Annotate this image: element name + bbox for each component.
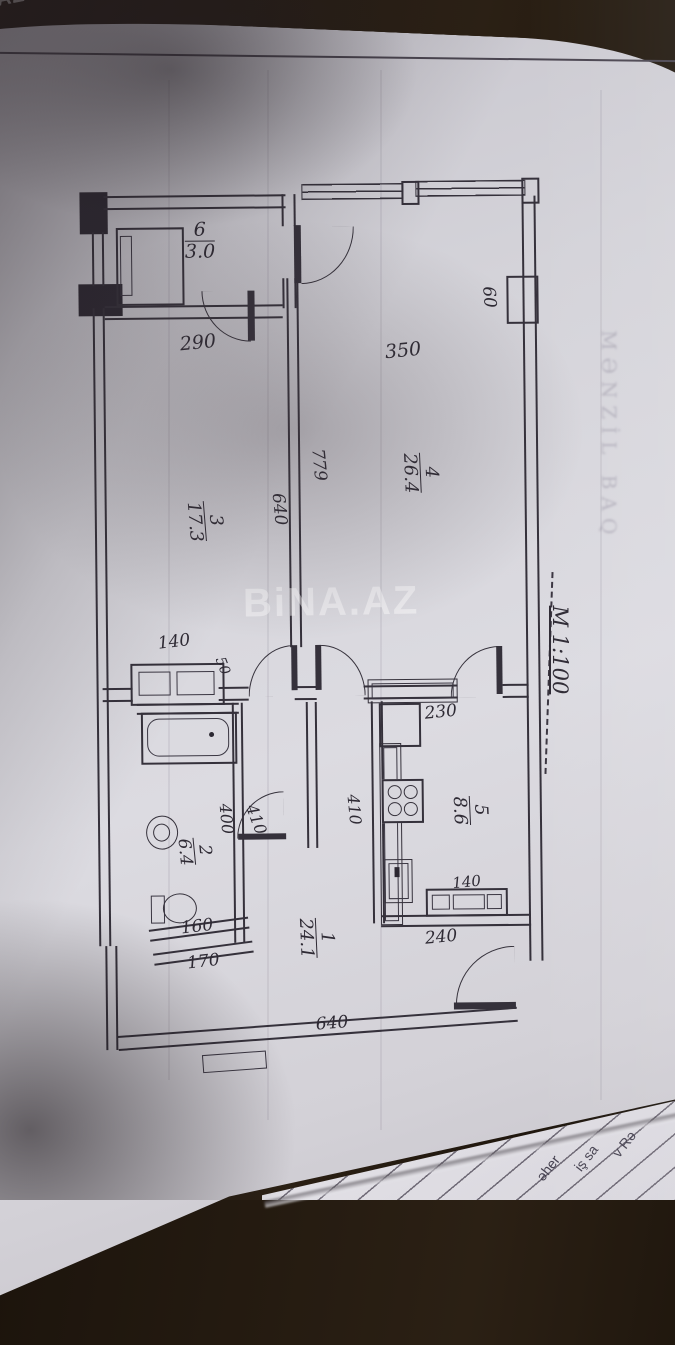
entrance-door-arc: [455, 946, 515, 1006]
stove-burner: [404, 802, 418, 816]
window: [415, 180, 525, 197]
wall: [503, 684, 529, 698]
wall: [92, 232, 105, 286]
balcony-rail: [105, 304, 283, 320]
sink-inner: [153, 823, 170, 841]
window: [301, 183, 403, 200]
radiator-cabinet: [426, 888, 508, 917]
corner-watermark: A.AZ: [0, 0, 27, 16]
dim-640-bottom: 640: [315, 1014, 349, 1034]
room-label-3: 317.3: [184, 500, 226, 543]
room-label-2: 26.4: [175, 836, 214, 867]
vent-shaft: [506, 276, 539, 324]
stove: [382, 779, 424, 823]
kitchen-sink: [384, 859, 412, 903]
dim-230: 230: [424, 703, 458, 723]
room-label-5: 58.6: [450, 795, 490, 825]
bleed-line: [600, 90, 602, 1100]
window-pane: [176, 671, 214, 695]
bathtub-inner: [147, 718, 229, 757]
dim-140-kitchen: 140: [452, 874, 482, 892]
dim-779: 779: [308, 448, 328, 482]
wall: [93, 308, 112, 946]
threshold-step: [202, 1051, 267, 1074]
wall: [306, 702, 319, 848]
room-label-6: 63.0: [185, 220, 216, 261]
photo-of-floor-plan: { "document": { "scale_label": "M 1:100"…: [0, 0, 675, 1200]
cabinet-section: [432, 895, 450, 910]
door-arc: [320, 644, 366, 695]
bleed-through-text: MƏNZİL BAQ: [597, 330, 621, 541]
dim-240: 240: [424, 928, 458, 948]
scale-label: M 1:100: [548, 606, 572, 695]
stove-burner: [388, 802, 402, 816]
cabinet-section: [453, 894, 485, 909]
wall: [103, 688, 133, 702]
hall-wardrobe: [368, 678, 458, 703]
wall: [103, 194, 285, 210]
door-arc: [450, 646, 500, 698]
room-label-4: 426.4: [400, 452, 441, 494]
dim-350: 350: [384, 340, 422, 362]
bina-az-watermark: BiNA.AZ: [243, 578, 420, 626]
cabinet-section: [487, 894, 502, 909]
dim-140-bath: 140: [157, 632, 191, 653]
wall: [105, 946, 118, 1050]
floor-plan-drawing: 63.0 290 350 60 779 640 426.4 317.3 140 …: [53, 175, 567, 1085]
window-pane: [138, 671, 170, 695]
wall: [219, 687, 249, 701]
dim-170: 170: [186, 952, 220, 973]
room-label-1: 124.1: [296, 917, 337, 959]
dim-410-kitchen: 410: [344, 794, 363, 826]
stove-burner: [388, 785, 402, 799]
dim-290: 290: [179, 332, 217, 354]
kitchen-duct: [379, 703, 421, 747]
wall: [281, 194, 295, 226]
kitchen-faucet: [394, 867, 399, 877]
bathtub-drain: [209, 732, 214, 737]
balcony-cabinet-door: [120, 236, 133, 296]
dim-160: 160: [180, 917, 214, 938]
stove-burner: [404, 785, 418, 799]
dim-60: 60: [479, 286, 498, 309]
dim-640-mid: 640: [269, 492, 289, 526]
door-arc: [248, 645, 294, 696]
wall: [295, 686, 317, 700]
door-arc: [301, 227, 355, 285]
dim-400: 400: [217, 803, 236, 835]
